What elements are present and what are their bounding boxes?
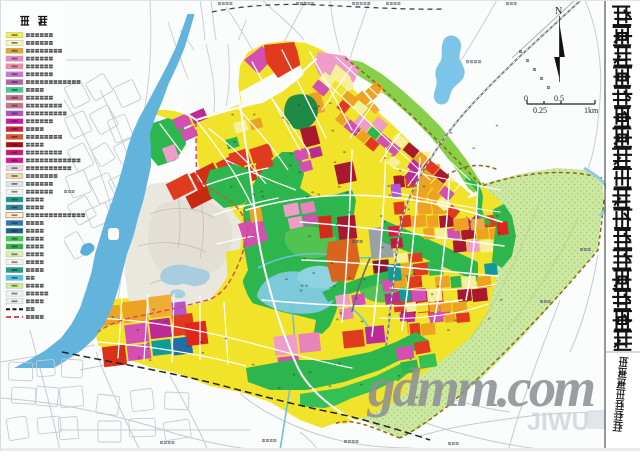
svg-text:0.5: 0.5 [554,94,564,103]
svg-text:JIWU: JIWU [527,408,590,436]
svg-text:1km: 1km [584,106,599,115]
svg-text:0.25: 0.25 [533,106,547,115]
svg-text:0: 0 [524,94,528,103]
svg-text:N: N [555,6,562,17]
